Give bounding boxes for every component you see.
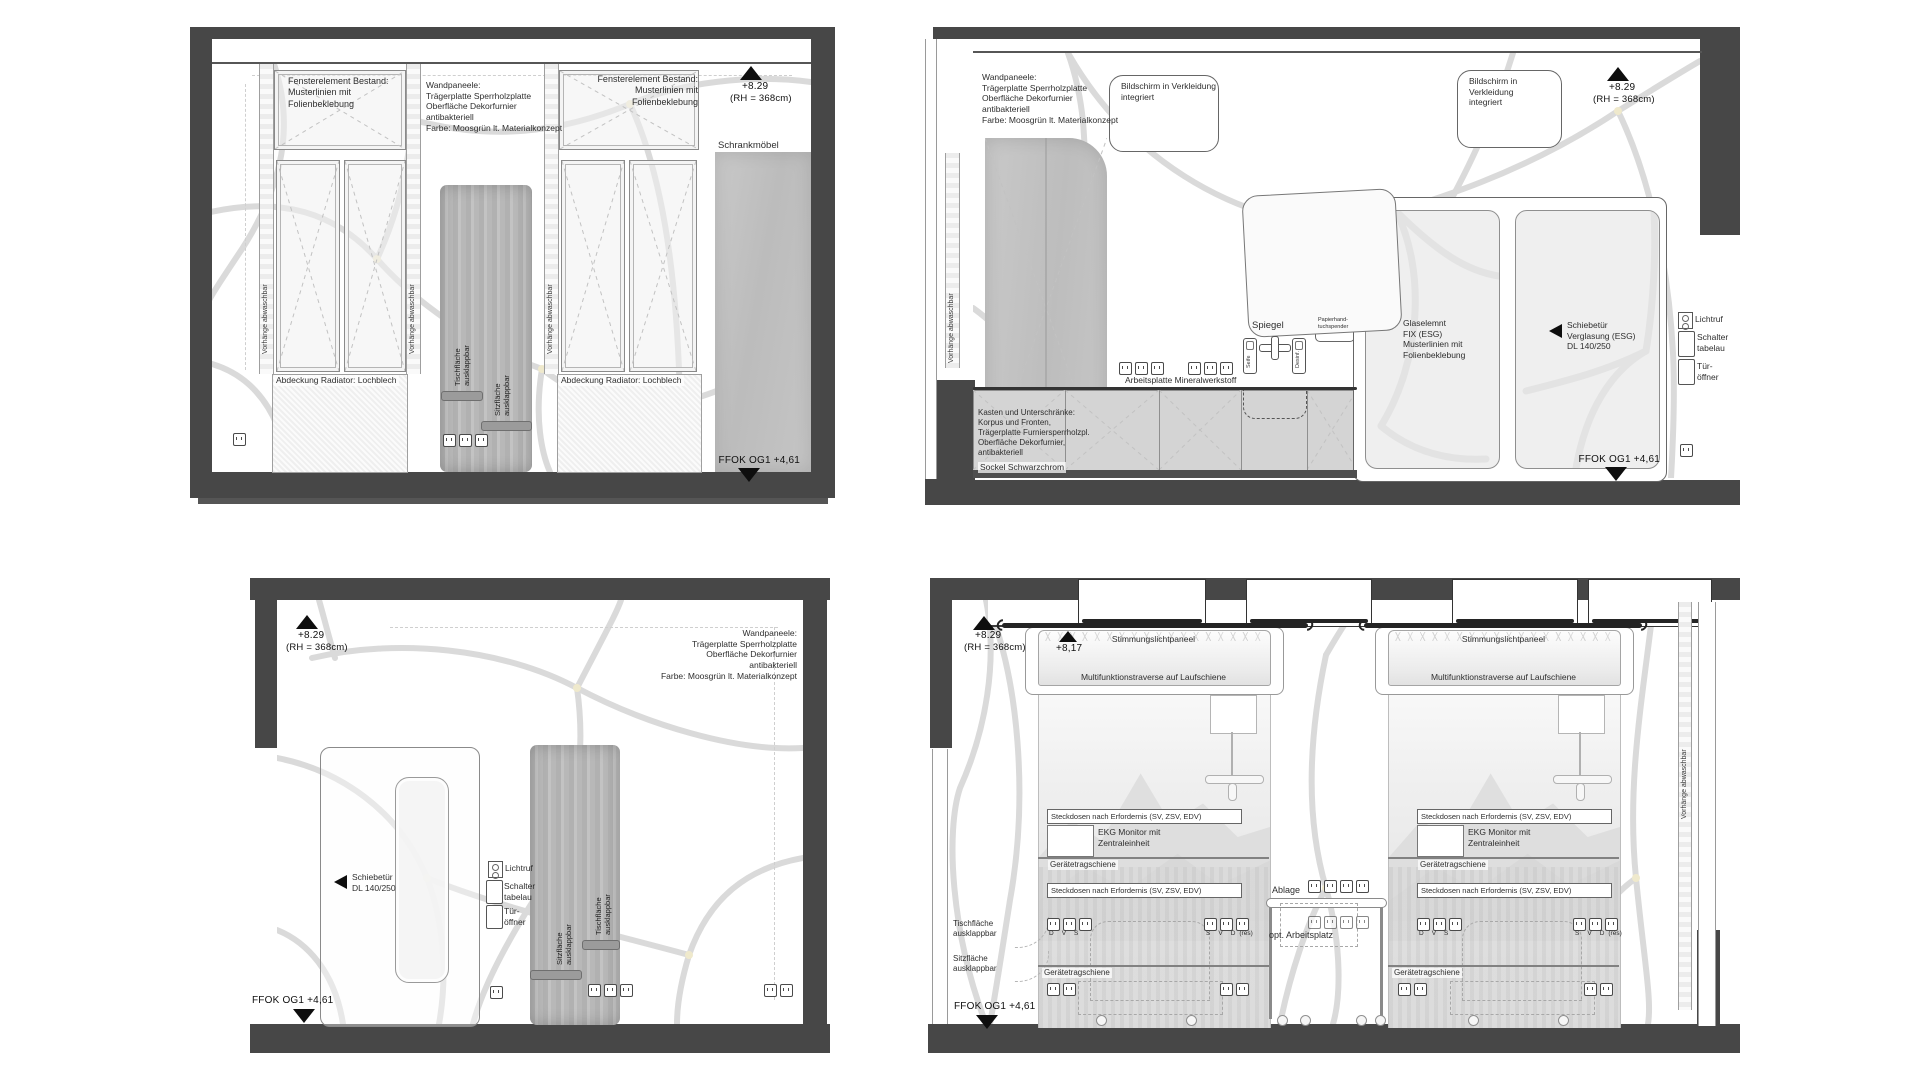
ekg-label: EKG Monitor mit Zentraleinheit (1468, 827, 1548, 848)
desk-wheel (1300, 1015, 1311, 1026)
socket-letter: D (1231, 930, 1236, 938)
fold-seat-slat (481, 421, 532, 431)
nurse-call-icon (488, 861, 503, 878)
slab-top (933, 27, 1740, 39)
ekg-monitor-box (1417, 825, 1464, 857)
level-rh: (RH = 368cm) (964, 642, 1026, 654)
sink-outline-dashed (1243, 390, 1307, 419)
desk-wheel (1277, 1015, 1288, 1026)
ceiling-recess (1078, 579, 1206, 627)
ffok-label: FFOK OG1 +4,61 (954, 1001, 1035, 1014)
layout-dashed-line (774, 627, 775, 1000)
ffok-label: FFOK OG1 +4,61 (690, 455, 800, 468)
socket-letter: V (1587, 930, 1591, 938)
glass-fixed-label: Glaselemnt FIX (ESG) Musterlinien mit Fo… (1403, 318, 1483, 361)
wall-panel-note: Wandpaneele: Trägerplatte Sperrholzplatt… (426, 80, 568, 133)
wall-right-upper (1700, 39, 1740, 235)
fold-seat-label: Sitzfläche ausklappbar (555, 877, 573, 965)
mirror (1241, 188, 1402, 338)
level-rh: (RH = 368cm) (1593, 94, 1655, 106)
elevation-window-wall: Vorhänge abwaschbar Vorhänge abwaschbar … (190, 18, 835, 505)
bed-wheel (1186, 1015, 1197, 1026)
socket-icon (1398, 983, 1411, 996)
socket-strip: Steckdosen nach Erfordernis (SV, ZSV, ED… (1047, 809, 1242, 824)
level-marker-top (296, 615, 318, 629)
rail-label: Gerätetragschiene (1048, 860, 1118, 870)
level-value-soffit: +8,17 (1056, 643, 1082, 656)
level-value: +8.29 (298, 630, 324, 643)
slab-top (250, 578, 830, 600)
socket-group (1584, 983, 1613, 996)
bed-wheel (1096, 1015, 1107, 1026)
wall-panel-note: Wandpaneele: Trägerplatte Sperrholzplatt… (982, 72, 1142, 125)
nurse-call-label: Lichtruf (505, 863, 533, 874)
door-opener-label: Tür- öffner (504, 906, 544, 927)
socket-icon (1188, 362, 1201, 375)
level-marker-top (973, 616, 995, 630)
paper-towel-label: Papierhand- tuchspender (1318, 317, 1352, 331)
radiator-cover (557, 374, 702, 473)
socket-letters: DVS (1049, 930, 1109, 938)
radiator-cover (272, 374, 408, 473)
socket-icon (1680, 444, 1693, 457)
socket-icon (1308, 916, 1321, 929)
socket-icon (1135, 362, 1148, 375)
soap-label: Seife (1246, 346, 1253, 368)
ceiling-line (973, 51, 1702, 53)
ceiling-line (212, 62, 811, 64)
slab-bottom (250, 1024, 830, 1053)
socket-icon (459, 434, 472, 447)
sliding-door-label: Schiebetür DL 140/250 (352, 872, 442, 893)
level-value: +8.29 (1609, 82, 1635, 95)
socket-group (443, 434, 488, 447)
level-marker-bottom (976, 1015, 998, 1029)
bed-frame-dashed (1078, 981, 1223, 1015)
socket-group (1047, 983, 1076, 996)
socket-icon (1324, 880, 1337, 893)
slab-top (190, 27, 835, 39)
socket-icon (1340, 880, 1353, 893)
cabinet-door-cross (1307, 390, 1357, 470)
sliding-door-label: Schiebetür Verglasung (ESG) DL 140/250 (1567, 320, 1659, 352)
socket-icon (1204, 362, 1217, 375)
door-direction-arrow (334, 875, 347, 889)
wall-left-upper (255, 578, 277, 748)
fold-table-label: Tischfläche ausklappbar (453, 298, 471, 386)
wall-right (803, 578, 827, 1053)
bed-frame-dashed (1450, 981, 1595, 1015)
socket-strip: Steckdosen nach Erfordernis (SV, ZSV, ED… (1047, 883, 1242, 898)
socket-icon (1340, 916, 1353, 929)
socket-group (1188, 362, 1233, 375)
socket-letter: S (1074, 930, 1078, 938)
level-marker-top (1607, 67, 1629, 81)
plinth-label: Sockel Schwarzchrom (978, 462, 1066, 473)
screen-label: Bildschirm in Verkleidung integriert (1469, 76, 1561, 108)
level-marker-top (740, 66, 762, 80)
ekg-label: EKG Monitor mit Zentraleinheit (1098, 827, 1178, 848)
socket-letter: S (1444, 930, 1448, 938)
socket-icon (764, 984, 777, 997)
elevation-bath-wall: Vorhänge abwaschbar Wandpaneele: Trägerp… (925, 18, 1740, 505)
level-marker-bottom (1605, 467, 1627, 481)
socket-icon (1600, 983, 1613, 996)
socket-icon (780, 984, 793, 997)
fold-table-label: Tischfläche ausklappbar (953, 919, 1015, 939)
curtain-label: Vorhänge abwaschbar (1681, 614, 1689, 819)
level-value: +8.29 (975, 630, 1001, 643)
socket-icon (588, 984, 601, 997)
wardrobe-label: Schrankmöbel (718, 140, 779, 152)
elevation-bed-wall: +8.29 (RH = 368cm) +8,17 Stimmungslichtp… (928, 569, 1740, 1053)
desk-wheel (1375, 1015, 1386, 1026)
socket-letter: D (1600, 930, 1605, 938)
socket-letter: D (1419, 930, 1424, 938)
level-rh: (RH = 368cm) (286, 642, 348, 654)
slab-bottom (928, 1024, 1740, 1053)
switch-panel-icon (1678, 331, 1695, 357)
socket-icon (620, 984, 633, 997)
radiator-label: Abdeckung Radiator: Lochblech (274, 375, 399, 386)
traverse-label: Multifunktionstraverse auf Laufschiene (1025, 672, 1282, 683)
rail-label: Gerätetragschiene (1392, 968, 1462, 978)
equipment-rail (1388, 965, 1619, 967)
fold-table-slat (441, 391, 483, 401)
wall-right (811, 27, 835, 498)
cabinet-divider (1159, 390, 1160, 470)
window-label: Fensterelement Bestand: Musterlinien mit… (580, 74, 698, 108)
desk-leg (1269, 907, 1272, 1019)
socket-icon (233, 433, 246, 446)
equipment-rail (1038, 857, 1269, 859)
socket-icon (1308, 880, 1321, 893)
workplace-label: opt. Arbeitsplatz (1269, 930, 1333, 941)
worktop-label: Arbeitsplatte Mineralwerkstoff (1125, 375, 1236, 386)
window-label: Fensterelement Bestand: Musterlinien mit… (288, 76, 404, 110)
wall-left (190, 27, 212, 498)
nurse-call-icon (1678, 312, 1693, 329)
curtain-rail-dashed-corner (245, 84, 246, 370)
door-opener-icon (1678, 359, 1695, 385)
socket-icon (475, 434, 488, 447)
socket-icon (1220, 983, 1233, 996)
socket-icon (1356, 880, 1369, 893)
switch-panel-label: Schalter tabelau (1697, 332, 1743, 353)
curtain-track (1002, 623, 1308, 628)
socket-letter: S (1206, 930, 1210, 938)
desk-wheel (1356, 1015, 1367, 1026)
socket-letter-res: (res) (1608, 930, 1621, 938)
socket-letters: SVD(res) (1575, 930, 1645, 938)
bed-wheel (1558, 1015, 1569, 1026)
socket-icon (443, 434, 456, 447)
mood-light-label: Stimmungslichtpaneel (1038, 634, 1269, 645)
elevation-door-wall: +8.29 (RH = 368cm) Wandpaneele: Trägerpl… (250, 569, 830, 1053)
screen-label: Bildschirm in Verkleidung integriert (1121, 81, 1217, 102)
supply-unit-box (1210, 695, 1257, 734)
socket-icon (1236, 983, 1249, 996)
iv-grip (1576, 783, 1585, 801)
socket-icon (604, 984, 617, 997)
socket-letter: V (1062, 930, 1066, 938)
socket-letter: S (1575, 930, 1579, 938)
mood-light-label: Stimmungslichtpaneel (1388, 634, 1619, 645)
fold-seat-label: Sitzfläche ausklappbar (493, 328, 511, 416)
window-casement (276, 160, 340, 372)
window-frame-left (932, 749, 948, 1024)
door-opener-label: Tür- öffner (1697, 361, 1737, 382)
socket-icon (1119, 362, 1132, 375)
switch-panel-icon (486, 880, 503, 904)
floor-edge (198, 498, 828, 504)
traverse-label: Multifunktionstraverse auf Laufschiene (1375, 672, 1632, 683)
window-casement (629, 160, 697, 372)
socket-icon (1220, 362, 1233, 375)
socket-strip: Steckdosen nach Erfordernis (SV, ZSV, ED… (1417, 883, 1612, 898)
supply-unit-box (1558, 695, 1605, 734)
socket-strip: Steckdosen nach Erfordernis (SV, ZSV, ED… (1417, 809, 1612, 824)
desk-leg (1380, 907, 1383, 1019)
socket-letter: D (1049, 930, 1054, 938)
curtain-label: Vorhänge abwaschbar (948, 158, 956, 363)
mirror-label: Spiegel (1252, 320, 1284, 332)
window-frame-left (925, 39, 937, 479)
socket-letter: V (1432, 930, 1436, 938)
switch-panel-label: Schalter tabelau (504, 881, 550, 902)
ceiling-recess (1588, 579, 1712, 627)
disinfectant-label: Desinf. (1295, 344, 1302, 368)
socket-icon (490, 986, 503, 999)
ekg-monitor-box (1047, 825, 1094, 857)
socket-group (1220, 983, 1249, 996)
socket-icon (1584, 983, 1597, 996)
cabinet-divider (1241, 390, 1242, 470)
socket-group (1308, 880, 1369, 893)
socket-group (1119, 362, 1164, 375)
equipment-rail (1388, 857, 1619, 859)
door-direction-arrow (1549, 324, 1562, 338)
iv-grip (1228, 783, 1237, 801)
drawing-sheet: Vorhänge abwaschbar Vorhänge abwaschbar … (0, 0, 1920, 1080)
level-marker-bottom (293, 1009, 315, 1023)
wall-panel-note: Wandpaneele: Trägerplatte Sperrholzplatt… (645, 628, 797, 681)
rail-label: Gerätetragschiene (1042, 968, 1112, 978)
socket-icon (1356, 916, 1369, 929)
curtain-label: Vorhänge abwaschbar (547, 154, 555, 354)
nurse-call-label: Lichtruf (1695, 314, 1723, 325)
socket-letter: V (1218, 930, 1222, 938)
socket-group-dashed (1308, 916, 1369, 929)
ffok-label: FFOK OG1 +4,61 (1560, 454, 1660, 467)
ceiling-recess (1452, 579, 1578, 627)
window-frame-right (1698, 602, 1716, 1026)
socket-icon (1063, 983, 1076, 996)
wardrobe-block (715, 152, 811, 472)
fold-table-label: Tischfläche ausklappbar (594, 847, 612, 935)
level-value: +8.29 (742, 81, 768, 94)
cabinet-door-cross (1159, 390, 1241, 470)
fold-table-slat (582, 940, 620, 950)
curtain-track (1364, 623, 1642, 628)
socket-group (1398, 983, 1427, 996)
faucet-icon (1271, 336, 1279, 360)
curtain-label: Vorhänge abwaschbar (262, 154, 270, 354)
fold-seat-label: Sitzfläche ausklappbar (953, 954, 1015, 974)
socket-letter-res: (res) (1239, 930, 1252, 938)
level-rh: (RH = 368cm) (730, 93, 792, 105)
radiator-label: Abdeckung Radiator: Lochblech (559, 375, 684, 386)
cabinet-divider (1307, 390, 1308, 470)
ffok-label: FFOK OG1 +4,61 (252, 995, 333, 1008)
curtain-label: Vorhänge abwaschbar (409, 154, 417, 354)
socket-icon (1151, 362, 1164, 375)
level-marker-bottom (738, 468, 760, 482)
window-casement (561, 160, 625, 372)
socket-group (588, 984, 633, 997)
socket-icon (1414, 983, 1427, 996)
equipment-rail (1038, 965, 1269, 967)
socket-group (764, 984, 793, 997)
socket-letters: DVS (1419, 930, 1479, 938)
socket-icon (1047, 983, 1060, 996)
window-casement (344, 160, 406, 372)
slab-bottom (925, 480, 1740, 505)
rail-label: Gerätetragschiene (1418, 860, 1488, 870)
socket-icon (1324, 916, 1337, 929)
fold-seat-slat (530, 970, 582, 980)
shelf-label: Ablage (1272, 885, 1300, 896)
door-opener-icon (486, 905, 503, 929)
cabinet-note: Kasten und Unterschränke: Korpus und Fro… (978, 408, 1098, 458)
bed-wheel (1468, 1015, 1479, 1026)
socket-letters: SVD(res) (1206, 930, 1276, 938)
